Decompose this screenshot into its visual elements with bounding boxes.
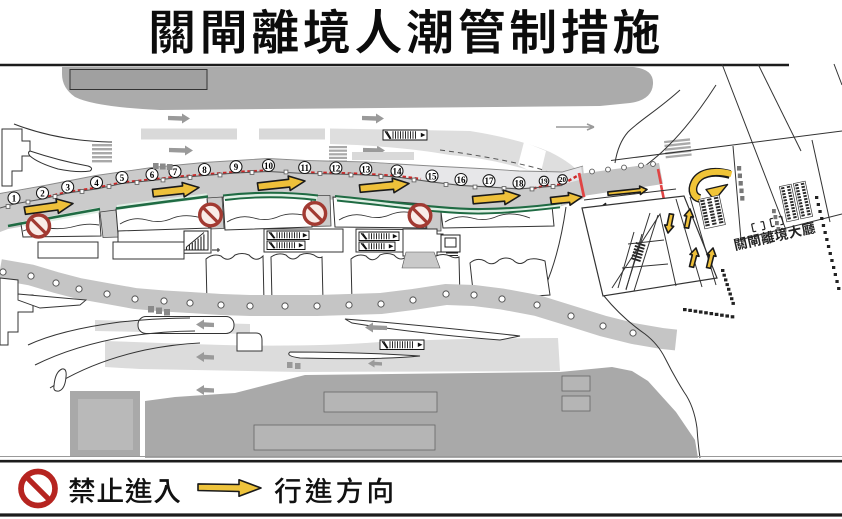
svg-text:4: 4: [94, 178, 99, 188]
svg-text:2: 2: [40, 188, 45, 198]
svg-text:15: 15: [428, 171, 438, 181]
svg-text:6: 6: [150, 170, 155, 180]
svg-text:18: 18: [515, 178, 525, 188]
svg-text:16: 16: [457, 175, 467, 185]
svg-text:10: 10: [264, 161, 274, 171]
svg-text:20: 20: [559, 176, 567, 184]
svg-text:8: 8: [202, 165, 207, 175]
svg-text:9: 9: [234, 162, 239, 172]
svg-text:11: 11: [300, 163, 309, 173]
svg-text:12: 12: [331, 163, 341, 173]
svg-text:13: 13: [361, 164, 371, 174]
svg-text:3: 3: [65, 182, 70, 192]
svg-text:5: 5: [120, 173, 125, 183]
svg-text:7: 7: [173, 167, 178, 177]
svg-text:19: 19: [540, 178, 548, 186]
svg-text:14: 14: [393, 166, 403, 176]
svg-text:17: 17: [485, 176, 495, 186]
svg-text:1: 1: [12, 193, 17, 203]
